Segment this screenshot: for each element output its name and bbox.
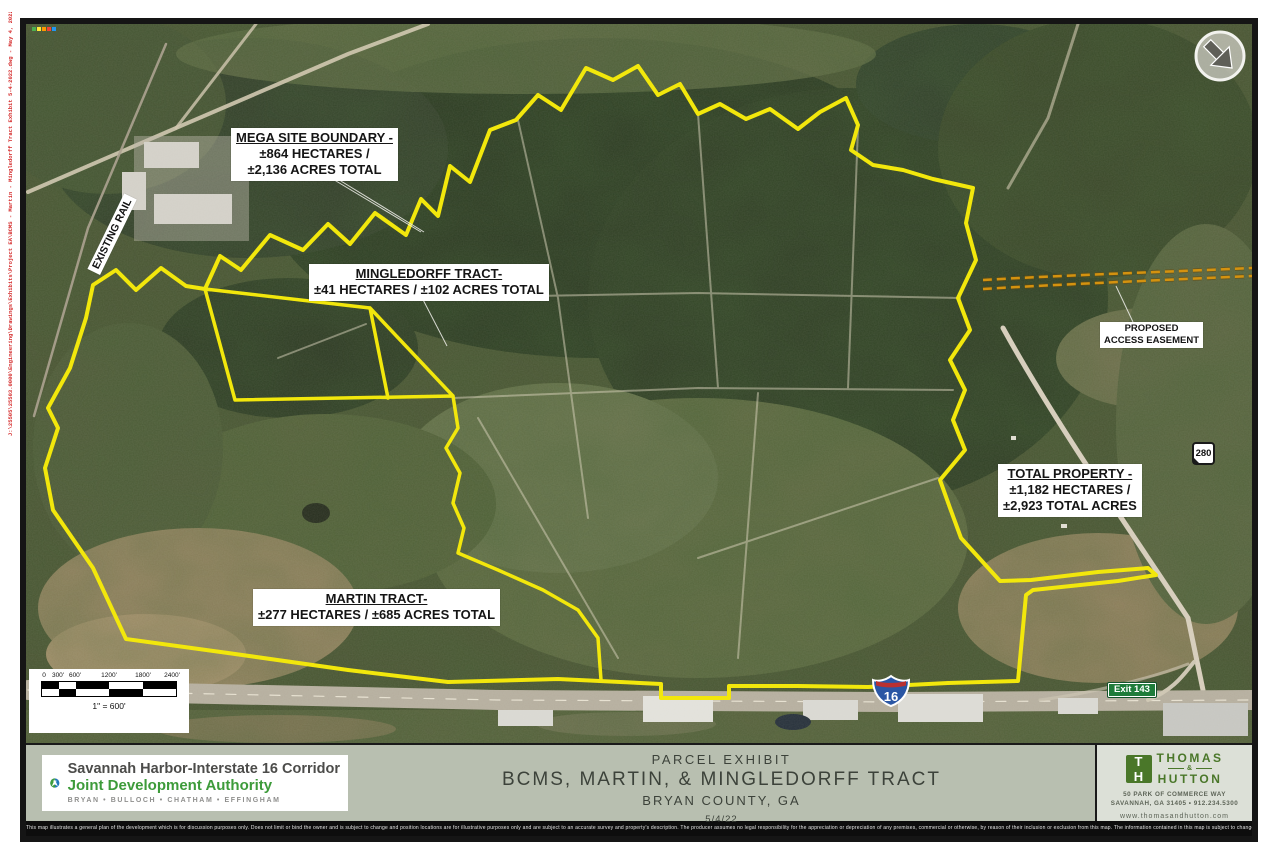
scale-ratio: 1" = 600' (29, 701, 189, 711)
firm-name-bottom: HUTTON (1158, 773, 1223, 785)
firm-website: www.thomasandhutton.com (1120, 813, 1229, 820)
label-mega-site: MEGA SITE BOUNDARY - ±864 HECTARES / ±2,… (231, 128, 398, 181)
firm-panel: T H THOMAS & HUTTON 50 PARK OF COMMERCE … (1095, 745, 1252, 821)
authority-name-line2: Joint Development Authority (68, 777, 340, 794)
disclaimer-strip: This map illustrates a general plan of t… (26, 821, 1252, 836)
scale-bar-segments (41, 681, 177, 697)
map-area: MEGA SITE BOUNDARY - ±864 HECTARES / ±2,… (26, 24, 1252, 743)
firm-name-top: THOMAS (1157, 752, 1224, 764)
state-route-280-marker: 280 (1192, 442, 1215, 465)
svg-text:16: 16 (884, 689, 898, 704)
label-mingledorff-tract: MINGLEDORFF TRACT- ±41 HECTARES / ±102 A… (309, 264, 549, 301)
label-access-easement: PROPOSED ACCESS EASEMENT (1100, 322, 1203, 348)
label-martin-tract: MARTIN TRACT- ±277 HECTARES / ±685 ACRES… (253, 589, 500, 626)
firm-address: 50 PARK OF COMMERCE WAY SAVANNAH, GA 314… (1111, 790, 1238, 809)
legend-artifact (32, 27, 56, 31)
plot-stamp: J:\25505\25503.0000\Engineering\Drawings… (7, 12, 14, 436)
jda-logo (50, 762, 60, 804)
title-block: Savannah Harbor-Interstate 16 Corridor J… (26, 743, 1252, 821)
authority-counties: BRYAN • BULLOCH • CHATHAM • EFFINGHAM (68, 797, 340, 805)
exhibit-type: PARCEL EXHIBIT (348, 752, 1095, 767)
authority-name-line1: Savannah Harbor-Interstate 16 Corridor (68, 761, 340, 778)
satellite-map (26, 24, 1252, 743)
project-name: BCMS, MARTIN, & MINGLEDORFF TRACT (348, 769, 1095, 791)
exit-143-sign: Exit 143 (1108, 683, 1156, 697)
authority-logo-box: Savannah Harbor-Interstate 16 Corridor J… (42, 755, 348, 811)
scale-bar: 0 300' 600' 1200' 1800' 2400' 1" = 600' (29, 669, 189, 733)
scale-ticks: 0 300' 600' 1200' 1800' 2400' (41, 672, 177, 681)
north-arrow-icon (1196, 32, 1244, 80)
project-location: BRYAN COUNTY, GA (348, 793, 1095, 808)
exhibit-sheet: MEGA SITE BOUNDARY - ±864 HECTARES / ±2,… (20, 18, 1258, 842)
label-total-property: TOTAL PROPERTY - ±1,182 HECTARES / ±2,92… (998, 464, 1142, 517)
project-title-block: PARCEL EXHIBIT BCMS, MARTIN, & MINGLEDOR… (348, 745, 1095, 821)
interstate-16-shield: 16 (871, 674, 911, 708)
thomas-hutton-logo: T H (1126, 755, 1152, 783)
image-grain (26, 24, 1252, 743)
firm-ampersand: & (1168, 765, 1212, 772)
